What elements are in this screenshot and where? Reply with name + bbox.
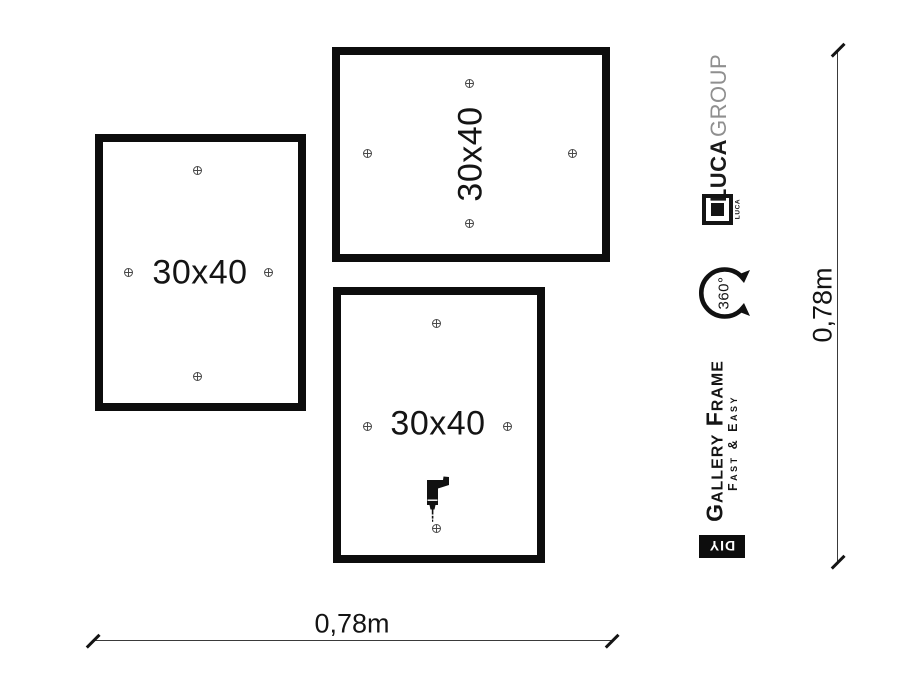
luca-logo-inner-square bbox=[711, 203, 724, 216]
mount-point-icon bbox=[363, 149, 372, 158]
drill-icon bbox=[423, 476, 453, 522]
mount-point-icon bbox=[503, 422, 512, 431]
diy-badge: DIY bbox=[699, 535, 745, 558]
width-dimension-line bbox=[93, 640, 612, 641]
mount-point-icon bbox=[264, 268, 273, 277]
mount-point-icon bbox=[432, 319, 441, 328]
rotation-360-label: 360° bbox=[716, 276, 733, 309]
mount-point-icon bbox=[363, 422, 372, 431]
height-dimension-label: 0,78m bbox=[808, 267, 839, 342]
mount-point-icon bbox=[465, 79, 474, 88]
width-dimension-label: 0,78m bbox=[314, 609, 389, 640]
luca-logo-icon bbox=[702, 194, 733, 225]
hanging-template-diagram: 30x40 30x40 30x40 0,78m 0,78m LUCAGROUP bbox=[0, 0, 900, 678]
mount-point-icon bbox=[568, 149, 577, 158]
brand-wordmark-secondary: GROUP bbox=[706, 54, 731, 137]
product-name: Gallery Frame bbox=[702, 360, 729, 522]
frame-bottom-size-label: 30x40 bbox=[390, 405, 485, 444]
product-tagline: Fast & Easy bbox=[726, 395, 740, 491]
luca-logo-caption: LUCA bbox=[735, 199, 742, 219]
brand-wordmark-primary: LUCA bbox=[706, 139, 731, 202]
diy-badge-label: DIY bbox=[709, 539, 735, 555]
frame-left-size-label: 30x40 bbox=[152, 254, 247, 293]
frame-top-size-label: 30x40 bbox=[452, 106, 491, 201]
mount-point-icon bbox=[193, 372, 202, 381]
mount-point-icon bbox=[193, 166, 202, 175]
mount-point-icon bbox=[432, 524, 441, 533]
brand-wordmark: LUCAGROUP bbox=[706, 54, 732, 202]
mount-point-icon bbox=[124, 268, 133, 277]
mount-point-icon bbox=[465, 219, 474, 228]
